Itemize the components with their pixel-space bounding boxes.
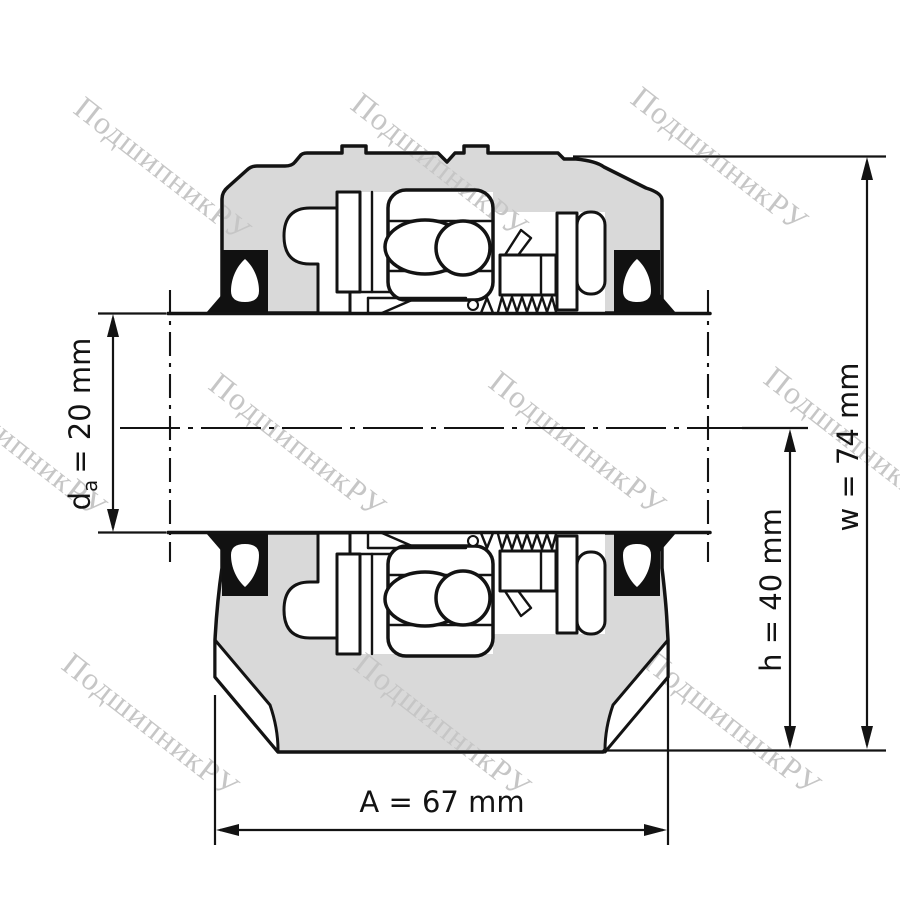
seal-top-right	[614, 250, 676, 313]
bore-arrow-down	[107, 509, 119, 532]
height-dim-label: h = 40 mm	[754, 508, 788, 672]
height-arrow-up	[784, 429, 796, 452]
locknut	[500, 255, 556, 295]
seal-bottom-right	[614, 533, 676, 596]
shaft-abutment-ring	[557, 213, 577, 310]
watermark-text: ПодшипникРУ	[0, 365, 114, 525]
ball-row-front	[436, 221, 490, 275]
seal-unit	[206, 250, 268, 313]
watermark-text: ПодшипникРУ	[638, 643, 829, 803]
sleeve-slot-detail	[468, 300, 478, 310]
seal-bottom-left	[206, 533, 268, 596]
plummer-block-cross-section: da= 20 mm h = 40 mm w = 74 mm A = 67 mm …	[0, 0, 900, 900]
bearing-drawing-canvas: da= 20 mm h = 40 mm w = 74 mm A = 67 mm …	[0, 0, 900, 900]
watermark-text: ПодшипникРУ	[758, 359, 900, 519]
watermark-text: ПодшипникРУ	[68, 89, 259, 249]
cap-recess-right	[577, 212, 605, 294]
overall-arrow-up	[861, 157, 873, 180]
overall-arrow-down	[861, 726, 873, 749]
bore-arrow-up	[107, 314, 119, 337]
cap-bolt-channel	[337, 192, 360, 292]
length-arrow-left	[216, 824, 239, 836]
dimension-center-height: h = 40 mm	[742, 428, 808, 749]
length-arrow-right	[644, 824, 667, 836]
